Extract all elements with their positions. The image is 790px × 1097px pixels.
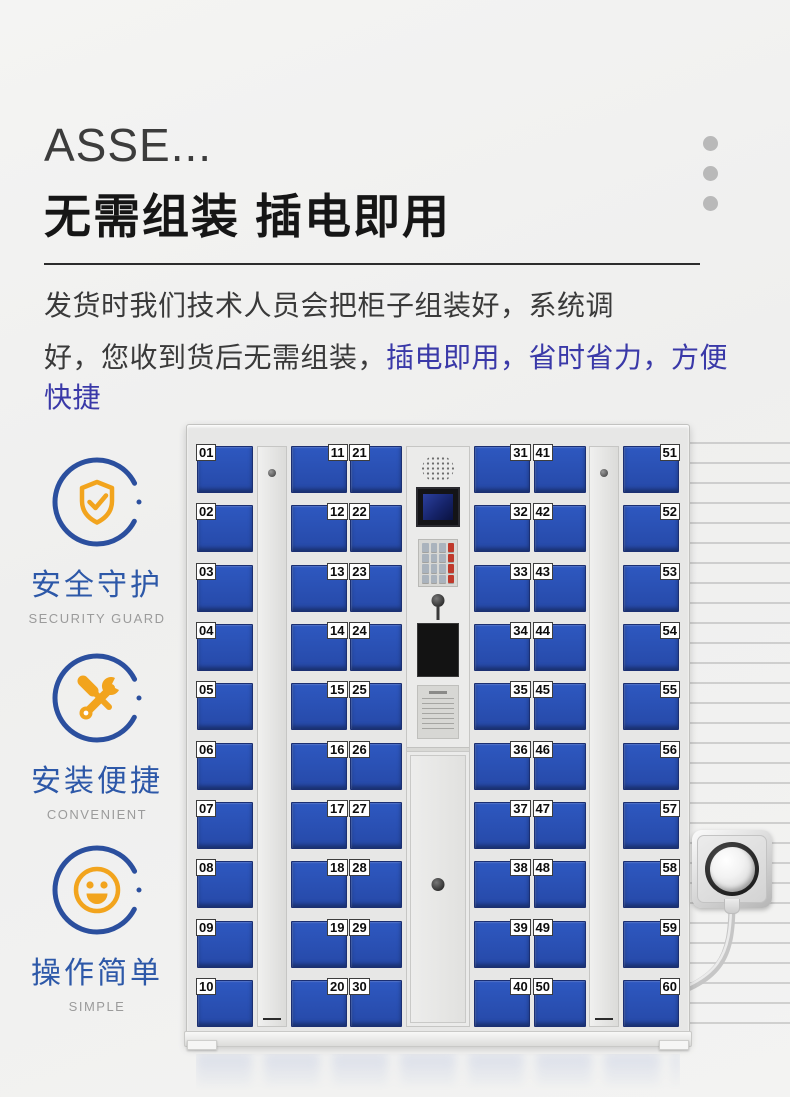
locker-door: 50 [534, 980, 586, 1027]
locker-door: 13 [291, 565, 347, 612]
locker-door: 09 [197, 921, 253, 968]
cabinet-base [184, 1031, 692, 1047]
screw-icon [268, 469, 276, 477]
locker-door: 41 [534, 446, 586, 493]
door-number-label: 45 [533, 681, 553, 698]
locker-door: 43 [534, 565, 586, 612]
locker-door: 36 [474, 743, 530, 790]
shield-check-icon [49, 454, 145, 550]
locker-door: 30 [350, 980, 402, 1027]
door-number-label: 55 [660, 681, 680, 698]
locker-door: 37 [474, 802, 530, 849]
locker-door: 55 [623, 683, 679, 730]
locker-door: 47 [534, 802, 586, 849]
door-number-label: 24 [349, 622, 369, 639]
locker-door: 42 [534, 505, 586, 552]
locker-door: 01 [197, 446, 253, 493]
locker-column-6: 51525354555657585960 [623, 446, 679, 1027]
door-number-label: 41 [533, 444, 553, 461]
door-number-label: 08 [196, 859, 216, 876]
door-number-label: 59 [660, 919, 680, 936]
door-number-label: 15 [327, 681, 347, 698]
door-number-label: 23 [349, 563, 369, 580]
locker-door: 33 [474, 565, 530, 612]
locker-column-2: 11121314151617181920 [291, 446, 347, 1027]
door-number-label: 52 [660, 503, 680, 520]
door-number-label: 46 [533, 741, 553, 758]
product-detail-page: { "header": { "title_truncated": "ASSE..… [0, 0, 790, 1097]
scanner-window [417, 623, 459, 677]
keypad-key [431, 543, 438, 552]
locker-door: 58 [623, 861, 679, 908]
locker-door: 24 [350, 624, 402, 671]
locker-door: 29 [350, 921, 402, 968]
locker-door: 52 [623, 505, 679, 552]
locker-door: 08 [197, 861, 253, 908]
door-number-label: 18 [327, 859, 347, 876]
locker-door: 46 [534, 743, 586, 790]
notice-sticker [417, 685, 459, 739]
decorative-dot [703, 166, 718, 181]
locker-door: 35 [474, 683, 530, 730]
keyhole-icon [432, 878, 445, 891]
door-number-label: 07 [196, 800, 216, 817]
locker-door: 04 [197, 624, 253, 671]
door-number-label: 14 [327, 622, 347, 639]
locker-door: 54 [623, 624, 679, 671]
locker-door: 31 [474, 446, 530, 493]
page-title: 无需组装 插电即用 [44, 178, 451, 247]
locker-door: 51 [623, 446, 679, 493]
locker-door: 10 [197, 980, 253, 1027]
control-panel [406, 446, 470, 1027]
locker-door: 22 [350, 505, 402, 552]
locker-door: 12 [291, 505, 347, 552]
door-number-label: 03 [196, 563, 216, 580]
wall-socket [692, 830, 772, 908]
socket-recess [705, 842, 759, 896]
description-line-1: 发货时我们技术人员会把柜子组装好，系统调 [44, 284, 754, 324]
locker-door: 18 [291, 861, 347, 908]
locker-cabinet: 01020304050607080910 1112131415161718192… [186, 424, 690, 1046]
keypad [418, 539, 458, 587]
locker-door: 14 [291, 624, 347, 671]
inserted-key [437, 607, 440, 620]
door-number-label: 10 [196, 978, 216, 995]
divider-line [44, 263, 700, 265]
locker-door: 03 [197, 565, 253, 612]
door-number-label: 13 [327, 563, 347, 580]
door-number-label: 20 [327, 978, 347, 995]
door-number-label: 51 [660, 444, 680, 461]
socket-faceplate [697, 835, 767, 903]
service-door [410, 755, 466, 1023]
keypad-key [448, 554, 455, 563]
display-screen [416, 487, 460, 527]
door-number-label: 30 [349, 978, 369, 995]
door-number-label: 05 [196, 681, 216, 698]
door-number-label: 48 [533, 859, 553, 876]
door-number-label: 02 [196, 503, 216, 520]
locker-column-1: 01020304050607080910 [197, 446, 253, 1027]
locker-door: 53 [623, 565, 679, 612]
door-number-label: 29 [349, 919, 369, 936]
door-number-label: 09 [196, 919, 216, 936]
door-number-label: 28 [349, 859, 369, 876]
locker-door: 59 [623, 921, 679, 968]
locker-column-3: 21222324252627282930 [350, 446, 402, 1027]
feature-simple: 操作简单 SIMPLE [4, 842, 190, 1014]
keypad-key [439, 575, 446, 584]
door-number-label: 33 [510, 563, 530, 580]
door-number-label: 49 [533, 919, 553, 936]
locker-door: 27 [350, 802, 402, 849]
feature-sublabel: SIMPLE [4, 999, 190, 1014]
locker-door: 19 [291, 921, 347, 968]
door-number-label: 42 [533, 503, 553, 520]
feature-label: 操作简单 [4, 948, 190, 992]
door-number-label: 27 [349, 800, 369, 817]
locker-door: 48 [534, 861, 586, 908]
keypad-key [431, 575, 438, 584]
locker-door: 25 [350, 683, 402, 730]
description-text: 好，您收到货后无需组装， [44, 342, 386, 373]
door-number-label: 01 [196, 444, 216, 461]
locker-door: 32 [474, 505, 530, 552]
keypad-key [431, 564, 438, 573]
decorative-dot [703, 136, 718, 151]
locker-door: 26 [350, 743, 402, 790]
door-number-label: 22 [349, 503, 369, 520]
keypad-key [439, 554, 446, 563]
locker-door: 02 [197, 505, 253, 552]
door-number-label: 44 [533, 622, 553, 639]
wrench-screwdriver-icon [49, 650, 145, 746]
door-number-label: 12 [327, 503, 347, 520]
door-number-label: 31 [510, 444, 530, 461]
keyhole-icon [432, 594, 445, 607]
power-plug [710, 847, 755, 892]
smiley-icon [49, 842, 145, 938]
door-number-label: 34 [510, 622, 530, 639]
keypad-key [422, 543, 429, 552]
door-number-label: 37 [510, 800, 530, 817]
title-truncated: ASSE... [44, 118, 212, 172]
locker-door: 40 [474, 980, 530, 1027]
keypad-key [439, 543, 446, 552]
door-number-label: 04 [196, 622, 216, 639]
feature-install: 安装便捷 CONVENIENT [4, 650, 190, 822]
door-number-label: 17 [327, 800, 347, 817]
locker-column-4: 31323334353637383940 [474, 446, 530, 1027]
keypad-key [422, 564, 429, 573]
locker-door: 49 [534, 921, 586, 968]
door-number-label: 06 [196, 741, 216, 758]
locker-grid: 01020304050607080910 1112131415161718192… [197, 446, 679, 1027]
divider-panel [257, 446, 287, 1027]
keypad-key [422, 554, 429, 563]
locker-door: 21 [350, 446, 402, 493]
door-number-label: 39 [510, 919, 530, 936]
door-number-label: 11 [328, 444, 348, 461]
door-number-label: 57 [660, 800, 680, 817]
feature-security: 安全守护 SECURITY GUARD [4, 454, 190, 626]
door-number-label: 58 [660, 859, 680, 876]
locker-door: 17 [291, 802, 347, 849]
locker-door: 45 [534, 683, 586, 730]
feature-label: 安全守护 [4, 560, 190, 604]
locker-door: 07 [197, 802, 253, 849]
door-number-label: 35 [510, 681, 530, 698]
door-number-label: 54 [660, 622, 680, 639]
locker-door: 11 [291, 446, 347, 493]
door-number-label: 50 [533, 978, 553, 995]
locker-door: 16 [291, 743, 347, 790]
door-number-label: 40 [510, 978, 530, 995]
locker-door: 23 [350, 565, 402, 612]
speaker-grille-icon [422, 455, 454, 482]
keypad-key [448, 543, 455, 552]
feature-label: 安装便捷 [4, 756, 190, 800]
keypad-key [431, 554, 438, 563]
locker-door: 56 [623, 743, 679, 790]
locker-door: 39 [474, 921, 530, 968]
feature-sublabel: SECURITY GUARD [4, 611, 190, 626]
feature-sublabel: CONVENIENT [4, 807, 190, 822]
keypad-key [448, 564, 455, 573]
door-number-label: 43 [533, 563, 553, 580]
locker-door: 38 [474, 861, 530, 908]
locker-door: 34 [474, 624, 530, 671]
keypad-key [439, 564, 446, 573]
door-number-label: 26 [349, 741, 369, 758]
keypad-key [422, 575, 429, 584]
locker-door: 20 [291, 980, 347, 1027]
locker-door: 60 [623, 980, 679, 1027]
divider-panel [589, 446, 619, 1027]
keypad-key [448, 575, 455, 584]
door-number-label: 36 [510, 741, 530, 758]
door-number-label: 21 [349, 444, 369, 461]
decorative-dot [703, 196, 718, 211]
plug-neck [724, 899, 740, 914]
door-number-label: 56 [660, 741, 680, 758]
locker-door: 28 [350, 861, 402, 908]
door-number-label: 25 [349, 681, 369, 698]
locker-door: 44 [534, 624, 586, 671]
door-number-label: 53 [660, 563, 680, 580]
locker-door: 05 [197, 683, 253, 730]
door-number-label: 16 [327, 741, 347, 758]
panel-divider [407, 747, 469, 752]
door-number-label: 38 [510, 859, 530, 876]
door-number-label: 60 [660, 978, 680, 995]
locker-column-5: 41424344454647484950 [534, 446, 586, 1027]
door-number-label: 32 [510, 503, 530, 520]
door-number-label: 47 [533, 800, 553, 817]
screw-icon [600, 469, 608, 477]
screen-glow [423, 494, 453, 520]
locker-door: 57 [623, 802, 679, 849]
locker-door: 06 [197, 743, 253, 790]
locker-door: 15 [291, 683, 347, 730]
description-line-2: 好，您收到货后无需组装，插电即用，省时省力，方便快捷 [44, 336, 754, 416]
door-number-label: 19 [327, 919, 347, 936]
